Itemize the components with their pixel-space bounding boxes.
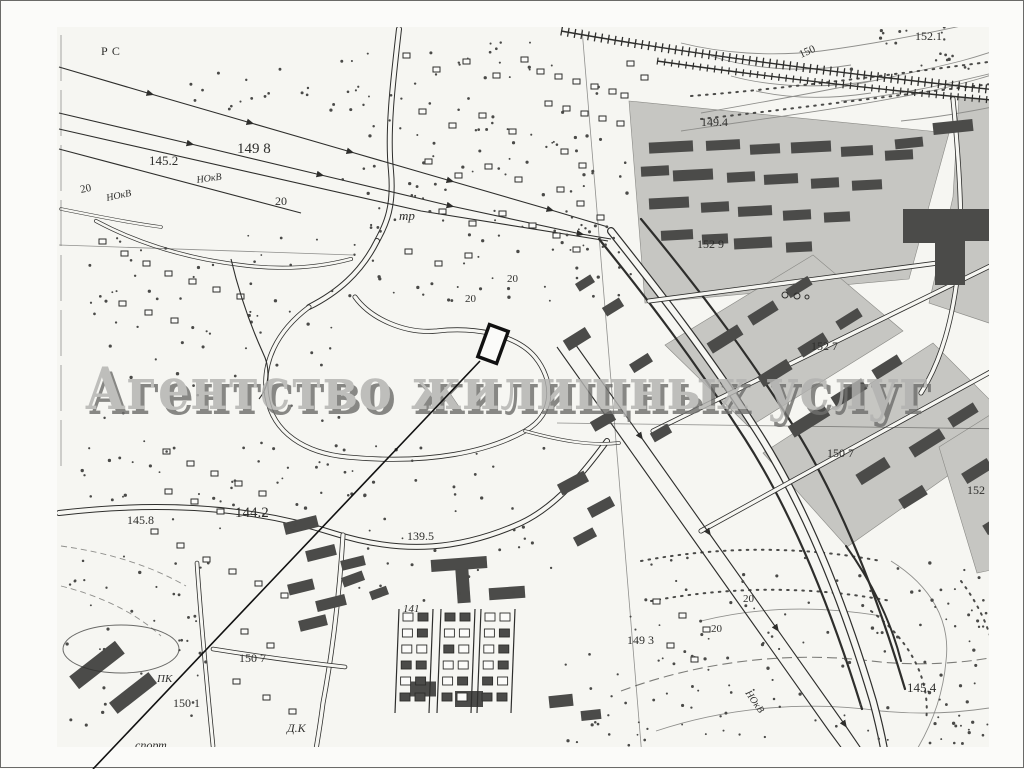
map-linework: [618, 251, 620, 253]
map-linework: [850, 68, 853, 71]
map-linework: [489, 51, 492, 54]
map-linework: [524, 537, 526, 539]
map-linework: [418, 613, 428, 621]
map-linework: [525, 161, 528, 164]
map-linework: [726, 657, 729, 660]
map-linework: [191, 326, 194, 329]
map-linework: [402, 629, 412, 637]
map-linework: [457, 693, 467, 701]
map-linework: [378, 207, 380, 209]
map-linework: [143, 261, 150, 266]
map-linework: [551, 142, 553, 144]
map-linework: [905, 30, 907, 32]
map-linework: [272, 447, 275, 450]
map-linework: [561, 241, 564, 244]
map-linework: [658, 659, 660, 661]
map-linework: [738, 205, 772, 217]
map-linework: [432, 155, 434, 157]
map-linework: [390, 94, 393, 97]
map-linework: [111, 498, 114, 501]
map-linework: [672, 662, 675, 665]
map-linework: [234, 479, 237, 482]
map-linework: [433, 142, 436, 145]
map-linework: [435, 73, 437, 75]
map-linework: [940, 738, 942, 740]
map-linework: [89, 495, 92, 498]
map-label: 145.4: [907, 680, 937, 695]
map-linework: [734, 237, 773, 250]
map-linework: [666, 693, 668, 695]
map-linework: [652, 699, 655, 702]
map-linework: [588, 230, 591, 233]
map-linework: [565, 663, 567, 665]
map-linework: [976, 619, 979, 622]
map-linework: [460, 613, 470, 621]
map-linework: [852, 179, 882, 191]
map-linework: [82, 560, 85, 563]
map-linework: [81, 469, 84, 472]
map-linework: [811, 177, 839, 188]
map-linework: [974, 664, 977, 667]
map-linework: [954, 724, 957, 727]
map-linework: [499, 211, 506, 216]
map-label: 152 9: [697, 237, 724, 251]
map-linework: [121, 251, 128, 256]
map-linework: [458, 592, 461, 595]
map-linework: [484, 76, 487, 79]
map-linework: [982, 599, 985, 602]
map-linework: [106, 628, 109, 631]
map-linework: [245, 347, 247, 349]
map-linework: [650, 563, 652, 565]
map-linework: [544, 286, 546, 288]
map-linework: [653, 599, 660, 604]
map-linework: [151, 529, 158, 534]
map-linework: [130, 259, 133, 262]
map-linework: [802, 642, 804, 644]
map-linework: [557, 187, 564, 192]
map-linework: [477, 256, 479, 258]
map-linework: [929, 742, 932, 745]
map-linework: [414, 82, 416, 84]
map-linework: [878, 738, 880, 740]
map-linework: [414, 195, 416, 197]
map-linework: [148, 290, 151, 293]
map-linework: [641, 75, 648, 80]
map-linework: [681, 724, 683, 726]
map-linework: [485, 128, 488, 131]
map-linework: [545, 146, 547, 148]
map-label: 20: [711, 623, 723, 635]
map-linework: [971, 721, 974, 724]
map-linework: [362, 104, 364, 106]
map-linework: [156, 298, 159, 301]
map-linework: [274, 299, 277, 302]
map-linework: [104, 300, 107, 303]
map-linework: [306, 94, 309, 97]
map-linework: [953, 742, 956, 745]
map-linework: [294, 524, 297, 527]
map-linework: [416, 677, 426, 685]
map-linework: [588, 653, 591, 656]
map-linework: [661, 229, 693, 241]
map-linework: [919, 624, 922, 627]
map-linework: [783, 209, 811, 220]
map-linework: [630, 273, 632, 275]
map-linework: [439, 209, 446, 214]
map-linework: [876, 632, 878, 634]
map-label: РС: [101, 44, 124, 58]
map-linework: [332, 103, 335, 106]
map-linework: [250, 97, 253, 100]
map-label: 150 1: [173, 696, 200, 710]
map-linework: [597, 723, 600, 726]
map-linework: [978, 626, 980, 628]
map-linework: [550, 567, 552, 569]
map-linework: [542, 193, 545, 196]
map-linework: [105, 587, 107, 589]
map-linework: [858, 574, 861, 577]
map-linework: [249, 311, 251, 313]
map-linework: [357, 86, 359, 88]
map-linework: [231, 481, 233, 483]
map-linework: [548, 694, 573, 708]
map-linework: [458, 61, 460, 63]
map-linework: [767, 632, 769, 634]
map-linework: [177, 543, 184, 548]
map-linework: [85, 724, 88, 727]
map-linework: [474, 473, 477, 476]
map-linework: [703, 627, 710, 632]
map-linework: [691, 685, 694, 688]
map-linework: [367, 53, 369, 55]
map-linework: [814, 719, 816, 721]
map-linework: [203, 557, 210, 562]
map-linework: [372, 125, 374, 127]
map-linework: [958, 715, 960, 717]
map-linework: [212, 497, 215, 500]
map-linework: [597, 275, 600, 278]
map-linework: [923, 661, 926, 664]
map-linework: [88, 447, 90, 449]
map-linework: [727, 171, 755, 182]
map-linework: [509, 129, 516, 134]
map-linework: [178, 639, 180, 641]
scanned-map-page: РС149 8145.220НОкВНОкВ20тр150152.1149.41…: [0, 0, 1024, 768]
map-linework: [408, 182, 411, 185]
map-linework: [483, 661, 493, 669]
map-linework: [870, 753, 873, 756]
map-linework: [641, 165, 669, 176]
map-linework: [599, 138, 602, 141]
map-linework: [453, 485, 456, 488]
map-linework: [455, 569, 470, 604]
map-linework: [402, 537, 404, 539]
map-linework: [824, 211, 850, 222]
map-linework: [457, 286, 459, 288]
map-linework: [304, 506, 307, 509]
map-linework: [943, 38, 945, 40]
map-linework: [458, 677, 468, 685]
watermark-text: Агентство жилищных услуг: [85, 355, 931, 423]
map-linework: [315, 466, 318, 469]
map-linework: [575, 266, 578, 269]
map-linework: [492, 465, 494, 467]
map-linework: [173, 447, 176, 450]
map-label: 20: [275, 194, 287, 208]
map-linework: [217, 72, 220, 75]
map-linework: [267, 92, 270, 95]
map-linework: [461, 165, 464, 168]
map-linework: [489, 586, 526, 600]
map-linework: [566, 739, 569, 742]
map-linework: [943, 26, 946, 29]
map-linework: [835, 725, 838, 728]
map-linework: [164, 247, 167, 250]
map-linework: [553, 230, 556, 233]
map-linework: [576, 277, 579, 280]
map-linework: [212, 264, 214, 266]
map-linework: [159, 471, 161, 473]
map-linework: [260, 254, 262, 256]
map-linework: [537, 69, 544, 74]
map-linework: [844, 714, 846, 716]
map-linework: [630, 616, 632, 618]
map-linework: [627, 61, 634, 66]
map-linework: [638, 721, 640, 723]
map-linework: [498, 548, 501, 551]
map-linework: [481, 239, 484, 242]
map-linework: [563, 106, 570, 111]
map-linework: [458, 661, 468, 669]
map-linework: [859, 704, 861, 706]
map-linework: [458, 64, 460, 66]
map-linework: [577, 201, 584, 206]
map-linework: [402, 645, 412, 653]
topographic-map: РС149 8145.220НОкВНОкВ20тр150152.1149.41…: [1, 1, 1024, 769]
map-label: 150 7: [239, 651, 266, 665]
map-linework: [738, 205, 772, 217]
map-linework: [463, 59, 470, 64]
map-linework: [206, 330, 208, 332]
map-linework: [784, 613, 786, 615]
map-linework: [204, 660, 207, 663]
map-linework: [467, 575, 470, 578]
map-linework: [848, 661, 851, 664]
map-linework: [824, 211, 850, 222]
map-linework: [701, 201, 729, 212]
map-linework: [109, 344, 112, 347]
map-linework: [507, 296, 510, 299]
map-linework: [467, 97, 470, 100]
map-linework: [181, 341, 184, 344]
map-linework: [171, 318, 178, 323]
map-linework: [624, 161, 627, 164]
map-linework: [118, 456, 121, 459]
map-linework: [971, 609, 973, 611]
map-linework: [512, 141, 515, 144]
map-linework: [952, 722, 955, 725]
map-linework: [230, 487, 233, 490]
map-linework: [411, 194, 414, 197]
map-linework: [193, 615, 196, 618]
map-linework: [394, 218, 397, 221]
map-linework: [706, 139, 740, 151]
map-linework: [522, 526, 525, 529]
map-linework: [102, 686, 105, 689]
map-linework: [573, 79, 580, 84]
map-linework: [581, 709, 602, 721]
map-linework: [165, 450, 168, 453]
map-linework: [423, 599, 426, 602]
map-linework: [455, 510, 457, 512]
map-linework: [928, 561, 931, 564]
map-linework: [444, 629, 454, 637]
map-linework: [310, 351, 313, 354]
map-linework: [99, 648, 101, 650]
map-linework: [469, 221, 476, 226]
map-linework: [994, 725, 997, 728]
map-linework: [699, 620, 702, 623]
map-linework: [491, 122, 494, 125]
map-label: 141: [403, 603, 420, 615]
map-label: спорт: [135, 738, 167, 752]
map-linework: [417, 645, 427, 653]
map-linework: [649, 196, 690, 209]
map-linework: [786, 241, 812, 252]
map-linework: [329, 109, 332, 112]
map-linework: [507, 287, 510, 290]
map-linework: [444, 189, 446, 191]
map-linework: [701, 201, 729, 212]
map-linework: [485, 613, 495, 621]
map-linework: [945, 618, 947, 620]
map-linework: [528, 66, 531, 69]
map-linework: [134, 275, 136, 277]
map-linework: [993, 436, 1020, 458]
map-linework: [786, 241, 812, 252]
map-linework: [791, 140, 832, 153]
map-linework: [230, 105, 233, 108]
map-linework: [551, 64, 553, 66]
map-linework: [145, 310, 152, 315]
map-linework: [826, 631, 829, 634]
map-linework: [673, 168, 714, 181]
map-linework: [249, 282, 252, 285]
map-linework: [99, 239, 106, 244]
map-linework: [592, 295, 595, 298]
map-linework: [209, 333, 211, 335]
map-linework: [289, 264, 292, 267]
map-linework: [521, 57, 528, 62]
map-linework: [881, 631, 884, 634]
map-linework: [548, 694, 573, 708]
map-linework: [498, 677, 508, 685]
map-label: ПК: [156, 673, 173, 685]
map-linework: [257, 460, 260, 463]
map-linework: [108, 459, 111, 462]
map-linework: [211, 471, 218, 476]
map-linework: [571, 216, 573, 218]
map-linework: [609, 89, 616, 94]
map-linework: [897, 567, 900, 570]
map-linework: [399, 127, 401, 129]
map-linework: [618, 266, 621, 269]
map-linework: [646, 728, 648, 730]
map-linework: [625, 191, 628, 194]
map-linework: [411, 460, 414, 463]
map-linework: [852, 179, 882, 191]
map-linework: [667, 643, 674, 648]
map-linework: [939, 699, 941, 701]
map-linework: [267, 643, 274, 648]
map-label: Д.К: [286, 721, 307, 735]
map-linework: [178, 593, 181, 596]
map-linework: [580, 224, 582, 226]
map-linework: [289, 709, 296, 714]
map-linework: [974, 682, 976, 684]
map-linework: [617, 673, 619, 675]
map-linework: [773, 698, 776, 701]
map-linework: [444, 645, 454, 653]
map-linework: [561, 111, 564, 114]
map-linework: [529, 69, 531, 71]
map-linework: [195, 620, 197, 622]
map-label: 152: [967, 483, 985, 497]
map-linework: [498, 661, 508, 669]
map-linework: [584, 227, 586, 229]
map-linework: [307, 87, 309, 89]
map-linework: [354, 244, 356, 246]
map-linework: [74, 579, 77, 582]
map-linework: [969, 640, 971, 642]
map-linework: [497, 167, 500, 170]
map-linework: [478, 149, 481, 152]
map-linework: [961, 742, 964, 745]
map-linework: [738, 733, 740, 735]
map-linework: [595, 92, 598, 95]
map-linework: [591, 723, 594, 726]
map-linework: [521, 226, 523, 228]
map-linework: [316, 239, 318, 241]
map-linework: [887, 739, 889, 741]
map-linework: [247, 235, 249, 237]
map-linework: [867, 730, 869, 732]
map-linework: [186, 640, 188, 642]
map-linework: [468, 233, 471, 236]
map-linework: [600, 237, 602, 239]
map-linework: [939, 750, 942, 753]
map-linework: [367, 192, 370, 195]
map-linework: [363, 494, 366, 497]
map-linework: [124, 696, 126, 698]
map-linework: [690, 706, 692, 708]
map-linework: [189, 83, 192, 86]
map-linework: [515, 177, 522, 182]
map-linework: [679, 613, 686, 618]
map-linework: [281, 593, 288, 598]
map-linework: [497, 693, 507, 701]
map-linework: [963, 569, 965, 571]
map-linework: [372, 481, 375, 484]
map-linework: [476, 453, 478, 455]
map-linework: [457, 108, 460, 111]
map-linework: [276, 481, 278, 483]
map-linework: [764, 173, 798, 185]
map-linework: [783, 209, 811, 220]
map-linework: [960, 725, 962, 727]
map-linework: [331, 290, 333, 292]
